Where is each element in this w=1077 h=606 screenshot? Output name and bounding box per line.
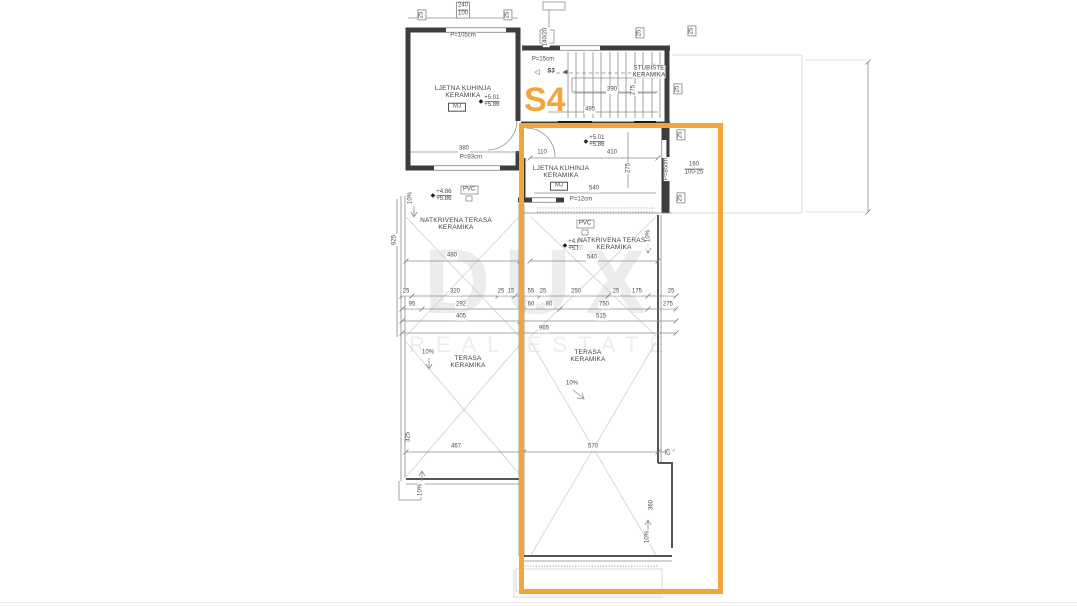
room-tag-mj: MJ: [448, 103, 466, 112]
chain-dim: 25: [497, 289, 506, 296]
dim-label: 380: [458, 146, 470, 153]
unit-s4-label: S4: [524, 83, 566, 117]
slope-label: 10%: [418, 483, 425, 497]
parapet-label: P=15cm: [531, 57, 555, 64]
unit-s4-highlight-box: [519, 123, 723, 594]
floorplan-image: DUX REAL ESTATE: [0, 0, 1077, 606]
chain-dim: 292: [455, 302, 467, 309]
level-marker-icon: ◆: [479, 99, 484, 105]
dim-label: 480: [446, 253, 458, 260]
room-label-terrace-left: TERASA KERAMIKA: [450, 355, 485, 369]
dim-label: 325: [406, 431, 413, 443]
dim-box-25: 25: [417, 10, 426, 21]
chain-dim: 25: [402, 289, 411, 296]
slope-label: 10%: [421, 350, 435, 357]
slope-label: 10%: [408, 191, 415, 205]
window-size-bottom: 100: [458, 10, 468, 18]
dim-label: 925: [392, 234, 399, 246]
dim-box-25: 25: [635, 28, 644, 39]
parapet-label: P=93cm: [459, 155, 483, 162]
level-marker: ◆ +4.86+5.86: [431, 189, 452, 203]
room-label-covered-terrace-left: NATKRIVENA TERASA KERAMIKA: [420, 217, 492, 231]
dim-label: 275: [631, 84, 638, 96]
staircase-treads: [556, 52, 660, 118]
stairs-mark-s3: S3: [547, 69, 554, 76]
dim-box-25: 25: [687, 26, 696, 37]
room-label-staircase: STUBIŠTE KERAMIKA: [633, 65, 666, 78]
level-marker-icon: ◆: [431, 193, 436, 199]
parapet-label: P=105cm: [449, 33, 477, 40]
chimney-spec-label: 140/20: [543, 27, 550, 47]
chain-dim: 95: [408, 302, 417, 309]
chain-dim: 15: [507, 289, 516, 296]
stairs-direction-arrow-icon: ◀: [563, 70, 568, 77]
dim-box-25: 25: [503, 10, 512, 21]
dim-label: 467: [450, 444, 462, 451]
stairs-direction-open-arrow-icon: ◁: [534, 69, 539, 77]
window-size-top: 240: [458, 3, 468, 10]
chain-dim: 405: [455, 314, 467, 321]
dim-box-25: 25: [673, 84, 682, 95]
level-marker: ◆ +5.01+5.86: [479, 95, 500, 109]
window-size-stack: 240 100: [456, 2, 470, 19]
pvc-drain-label: PVC: [463, 187, 475, 194]
dim-label: 390: [606, 87, 618, 94]
chain-dim: 320: [449, 289, 461, 296]
dim-label: 495: [584, 107, 596, 114]
